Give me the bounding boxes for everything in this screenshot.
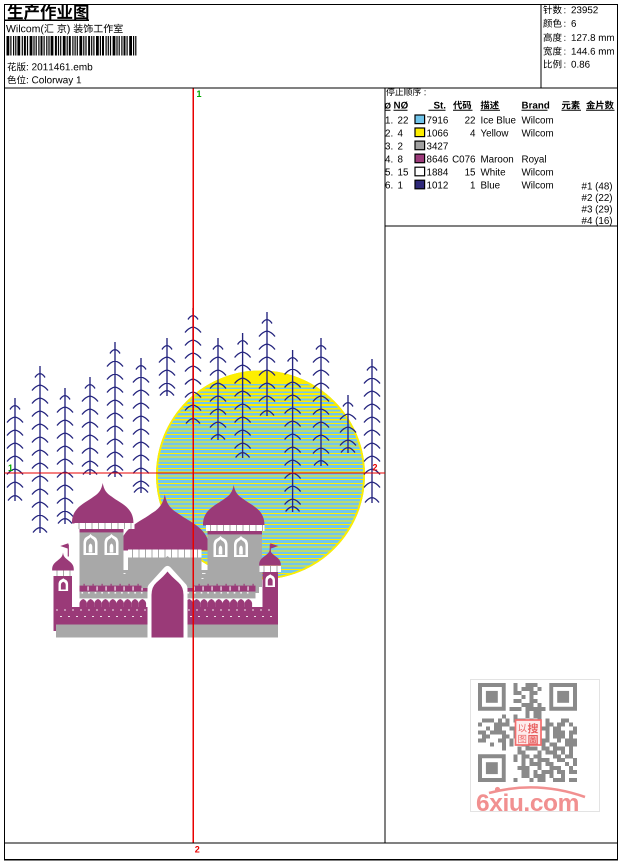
svg-text:4: 4 [398,128,404,139]
svg-text:1.: 1. [385,115,393,126]
svg-text:Wilcom: Wilcom [522,168,554,179]
svg-text:15: 15 [398,168,409,179]
svg-text:1884: 1884 [427,168,449,179]
svg-text:1: 1 [398,181,403,192]
svg-text:Wilcom: Wilcom [522,181,554,192]
svg-text:Maroon: Maroon [481,154,514,165]
svg-text:8646: 8646 [427,154,449,165]
svg-text:White: White [481,168,507,179]
svg-text:1: 1 [470,181,475,192]
svg-text:Wilcom: Wilcom [522,128,554,139]
svg-text:#4 (16): #4 (16) [582,216,613,227]
svg-text:1012: 1012 [427,181,449,192]
svg-text:2: 2 [195,845,200,855]
svg-text:3.: 3. [385,141,393,152]
svg-text:#2 (22): #2 (22) [582,193,613,204]
svg-text:5.: 5. [385,168,393,179]
svg-text:2.: 2. [385,128,393,139]
svg-text:C076: C076 [452,154,476,165]
svg-text:3427: 3427 [427,141,449,152]
svg-text:#3 (29): #3 (29) [582,204,613,215]
svg-text:1: 1 [197,89,202,99]
svg-text:4: 4 [470,128,476,139]
svg-text:Wilcom: Wilcom [522,115,554,126]
svg-text:Blue: Blue [481,181,501,192]
svg-text:22: 22 [398,115,409,126]
svg-text:22: 22 [465,115,476,126]
svg-text:2: 2 [398,141,403,152]
svg-text:Yellow: Yellow [481,128,510,139]
svg-text:1: 1 [8,463,13,473]
svg-text:2: 2 [373,463,378,473]
svg-text:4.: 4. [385,154,393,165]
svg-text:#1 (48): #1 (48) [582,181,613,192]
svg-text:6.: 6. [385,181,393,192]
svg-text:15: 15 [465,168,476,179]
svg-text:7916: 7916 [427,115,449,126]
svg-text:8: 8 [398,154,404,165]
svg-text:1066: 1066 [427,128,449,139]
svg-text:6xiu.com: 6xiu.com [476,790,579,817]
svg-text:Ice Blue: Ice Blue [481,115,517,126]
svg-text:Royal: Royal [522,154,547,165]
